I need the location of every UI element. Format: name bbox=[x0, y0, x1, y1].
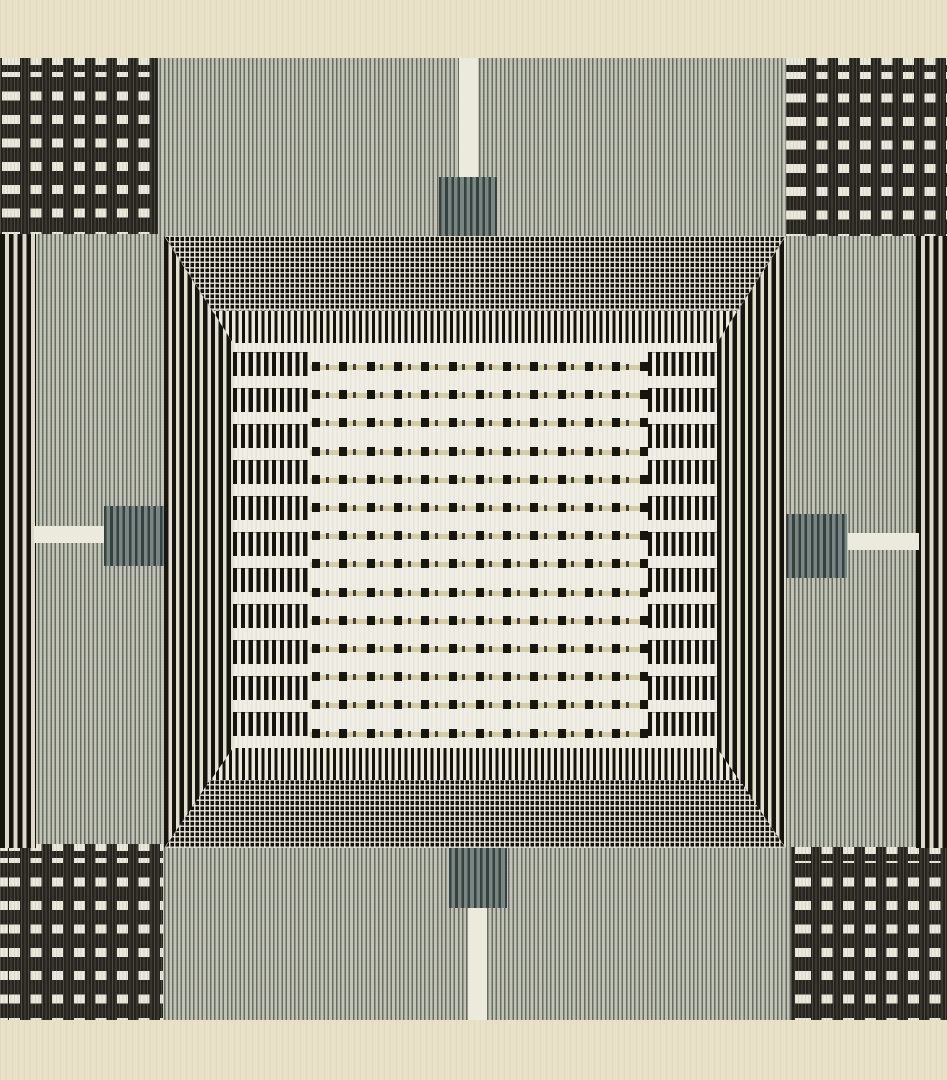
dash-tick bbox=[599, 420, 602, 426]
dash-square bbox=[612, 616, 620, 625]
ladder-bars-left bbox=[233, 343, 308, 748]
dash-square bbox=[612, 362, 620, 371]
dash-square bbox=[530, 447, 538, 456]
dash-square bbox=[312, 700, 320, 709]
dash-square bbox=[449, 531, 457, 540]
dash-square bbox=[558, 559, 566, 568]
dash-tick bbox=[599, 702, 602, 708]
dash-square bbox=[640, 616, 648, 625]
dash-square bbox=[339, 588, 347, 597]
dash-square bbox=[421, 672, 429, 681]
dash-tick bbox=[435, 674, 438, 680]
dash-tick bbox=[544, 505, 547, 511]
dash-square bbox=[476, 700, 484, 709]
dash-square bbox=[612, 559, 620, 568]
dash-tick bbox=[326, 505, 329, 511]
dash-row bbox=[310, 616, 648, 626]
dash-tick bbox=[489, 364, 492, 370]
dash-tick bbox=[626, 420, 629, 426]
dash-square bbox=[394, 616, 402, 625]
dash-tick bbox=[435, 477, 438, 483]
dash-tick bbox=[380, 590, 383, 596]
dash-tick bbox=[517, 533, 520, 539]
white-stripe-bottom bbox=[468, 904, 487, 1020]
dash-tick bbox=[353, 364, 356, 370]
dash-square bbox=[312, 418, 320, 427]
dash-tick bbox=[489, 561, 492, 567]
dash-square bbox=[612, 503, 620, 512]
dash-square bbox=[394, 531, 402, 540]
dash-square bbox=[530, 616, 538, 625]
dash-square bbox=[503, 362, 511, 371]
dash-square bbox=[449, 644, 457, 653]
dash-square bbox=[367, 503, 375, 512]
dash-square bbox=[394, 644, 402, 653]
dash-tick bbox=[435, 420, 438, 426]
frame-comb-band-bottom bbox=[164, 748, 786, 780]
dash-square bbox=[640, 503, 648, 512]
dash-square bbox=[421, 531, 429, 540]
dash-square bbox=[558, 475, 566, 484]
dash-tick bbox=[544, 561, 547, 567]
corner-block-top-right bbox=[786, 58, 947, 236]
dash-square bbox=[558, 390, 566, 399]
dash-tick bbox=[599, 364, 602, 370]
dash-tick bbox=[435, 364, 438, 370]
dash-square bbox=[558, 729, 566, 738]
dash-tick bbox=[353, 702, 356, 708]
dash-square bbox=[421, 418, 429, 427]
dash-square bbox=[585, 447, 593, 456]
dash-square bbox=[394, 447, 402, 456]
dash-square bbox=[612, 390, 620, 399]
corner-block-bottom-right bbox=[791, 847, 947, 1020]
dash-tick bbox=[544, 646, 547, 652]
dash-tick bbox=[435, 533, 438, 539]
dash-square bbox=[503, 475, 511, 484]
dash-square bbox=[585, 588, 593, 597]
dash-square bbox=[421, 475, 429, 484]
dash-tick bbox=[380, 731, 383, 737]
dash-square bbox=[503, 559, 511, 568]
dash-square bbox=[394, 588, 402, 597]
dash-tick bbox=[326, 533, 329, 539]
dash-tick bbox=[626, 505, 629, 511]
dash-tick bbox=[408, 533, 411, 539]
dash-tick bbox=[544, 702, 547, 708]
dash-tick bbox=[489, 533, 492, 539]
ladder-bar bbox=[233, 424, 308, 448]
dash-tick bbox=[462, 392, 465, 398]
dash-square bbox=[640, 588, 648, 597]
dash-tick bbox=[435, 449, 438, 455]
dash-square bbox=[312, 588, 320, 597]
dash-square bbox=[421, 700, 429, 709]
dash-tick bbox=[408, 590, 411, 596]
dash-square bbox=[367, 729, 375, 738]
dash-square bbox=[312, 729, 320, 738]
dash-tick bbox=[517, 364, 520, 370]
dash-square bbox=[476, 390, 484, 399]
dash-tick bbox=[435, 702, 438, 708]
dash-square bbox=[367, 559, 375, 568]
dash-tick bbox=[353, 561, 356, 567]
dash-tick bbox=[517, 477, 520, 483]
dash-square bbox=[503, 447, 511, 456]
dash-square bbox=[503, 588, 511, 597]
dash-square bbox=[503, 390, 511, 399]
dash-square bbox=[503, 672, 511, 681]
dash-tick bbox=[380, 505, 383, 511]
dash-square bbox=[476, 588, 484, 597]
dash-tick bbox=[599, 449, 602, 455]
dash-tick bbox=[353, 618, 356, 624]
corner-block-top-left bbox=[0, 58, 158, 234]
dash-square bbox=[585, 418, 593, 427]
dash-tick bbox=[599, 561, 602, 567]
dash-row bbox=[310, 418, 648, 428]
dash-square bbox=[558, 644, 566, 653]
dash-square bbox=[421, 644, 429, 653]
dash-square bbox=[394, 559, 402, 568]
dash-square bbox=[612, 700, 620, 709]
ladder-bar bbox=[648, 424, 717, 448]
dash-tick bbox=[599, 731, 602, 737]
dash-row bbox=[310, 503, 648, 513]
dash-square bbox=[367, 672, 375, 681]
dash-tick bbox=[571, 561, 574, 567]
dash-tick bbox=[326, 392, 329, 398]
dash-square bbox=[503, 503, 511, 512]
white-bar-right bbox=[848, 533, 919, 550]
dash-tick bbox=[544, 420, 547, 426]
ladder-bar bbox=[648, 604, 717, 628]
dash-tick bbox=[353, 505, 356, 511]
dash-square bbox=[312, 475, 320, 484]
dash-square bbox=[530, 531, 538, 540]
dash-square bbox=[449, 362, 457, 371]
dash-square bbox=[449, 616, 457, 625]
dash-square bbox=[503, 418, 511, 427]
dash-tick bbox=[435, 505, 438, 511]
dash-tick bbox=[353, 590, 356, 596]
dash-square bbox=[312, 672, 320, 681]
dash-tick bbox=[462, 674, 465, 680]
slate-tab-right bbox=[786, 514, 847, 578]
slate-tab-top bbox=[439, 177, 497, 241]
dash-square bbox=[530, 588, 538, 597]
dash-square bbox=[394, 503, 402, 512]
dash-tick bbox=[626, 590, 629, 596]
dash-tick bbox=[435, 392, 438, 398]
dash-square bbox=[449, 700, 457, 709]
dash-tick bbox=[408, 505, 411, 511]
dash-tick bbox=[408, 420, 411, 426]
dash-tick bbox=[380, 702, 383, 708]
ladder-bar bbox=[233, 460, 308, 484]
dash-square bbox=[640, 447, 648, 456]
dash-tick bbox=[326, 449, 329, 455]
dash-tick bbox=[571, 731, 574, 737]
dash-square bbox=[312, 559, 320, 568]
dash-square bbox=[339, 672, 347, 681]
dash-square bbox=[612, 644, 620, 653]
dash-square bbox=[339, 418, 347, 427]
dash-tick bbox=[571, 618, 574, 624]
dash-tick bbox=[326, 420, 329, 426]
dash-tick bbox=[517, 702, 520, 708]
dash-square bbox=[367, 447, 375, 456]
dash-tick bbox=[626, 646, 629, 652]
dash-square bbox=[503, 616, 511, 625]
dash-row bbox=[310, 531, 648, 541]
dash-tick bbox=[326, 674, 329, 680]
dash-square bbox=[339, 475, 347, 484]
dash-square bbox=[640, 672, 648, 681]
dash-tick bbox=[462, 505, 465, 511]
dash-tick bbox=[408, 364, 411, 370]
dash-tick bbox=[626, 392, 629, 398]
dash-square bbox=[612, 475, 620, 484]
dash-row bbox=[310, 559, 648, 569]
white-bar-left bbox=[34, 526, 111, 543]
dash-square bbox=[640, 700, 648, 709]
dash-square bbox=[312, 644, 320, 653]
dash-tick bbox=[326, 618, 329, 624]
dash-square bbox=[558, 700, 566, 709]
dash-tick bbox=[353, 646, 356, 652]
dash-square bbox=[640, 644, 648, 653]
dash-tick bbox=[435, 646, 438, 652]
dash-tick bbox=[544, 618, 547, 624]
dash-tick bbox=[544, 590, 547, 596]
dash-square bbox=[585, 616, 593, 625]
dash-square bbox=[367, 700, 375, 709]
dash-tick bbox=[571, 533, 574, 539]
ladder-bar bbox=[648, 496, 717, 520]
dash-square bbox=[530, 503, 538, 512]
dash-square bbox=[558, 447, 566, 456]
dash-tick bbox=[489, 618, 492, 624]
dash-square bbox=[476, 503, 484, 512]
dash-square bbox=[585, 559, 593, 568]
dash-tick bbox=[571, 646, 574, 652]
frame-mesh-band-top bbox=[164, 236, 786, 310]
dash-square bbox=[585, 475, 593, 484]
dash-tick bbox=[380, 449, 383, 455]
ladder-bar bbox=[233, 568, 308, 592]
dash-square bbox=[394, 700, 402, 709]
ladder-bar bbox=[233, 676, 308, 700]
dash-tick bbox=[517, 561, 520, 567]
dash-square bbox=[640, 559, 648, 568]
dash-tick bbox=[489, 646, 492, 652]
dash-square bbox=[503, 729, 511, 738]
dash-square bbox=[558, 531, 566, 540]
dash-row bbox=[310, 644, 648, 654]
dash-square bbox=[449, 390, 457, 399]
dash-square bbox=[558, 418, 566, 427]
dash-tick bbox=[380, 561, 383, 567]
dash-square bbox=[585, 531, 593, 540]
dash-square bbox=[640, 729, 648, 738]
dash-tick bbox=[517, 449, 520, 455]
dash-tick bbox=[626, 702, 629, 708]
dash-square bbox=[449, 503, 457, 512]
dash-square bbox=[530, 390, 538, 399]
dash-square bbox=[394, 418, 402, 427]
ladder-bar bbox=[648, 388, 717, 412]
dash-tick bbox=[380, 420, 383, 426]
dash-tick bbox=[326, 590, 329, 596]
dash-square bbox=[558, 503, 566, 512]
dash-tick bbox=[326, 561, 329, 567]
dash-square bbox=[476, 616, 484, 625]
dash-tick bbox=[353, 674, 356, 680]
dash-square bbox=[530, 418, 538, 427]
dash-square bbox=[421, 729, 429, 738]
dash-square bbox=[585, 362, 593, 371]
dash-square bbox=[558, 672, 566, 681]
dash-tick bbox=[517, 646, 520, 652]
dash-tick bbox=[489, 477, 492, 483]
frame-comb-band-top bbox=[164, 311, 786, 343]
dash-tick bbox=[435, 561, 438, 567]
dash-tick bbox=[517, 731, 520, 737]
dash-tick bbox=[489, 674, 492, 680]
dash-tick bbox=[517, 590, 520, 596]
dash-square bbox=[476, 362, 484, 371]
dash-tick bbox=[380, 392, 383, 398]
dash-tick bbox=[571, 364, 574, 370]
frame-stripe-band-left bbox=[164, 236, 233, 848]
dash-square bbox=[449, 559, 457, 568]
dash-tick bbox=[517, 505, 520, 511]
dash-square bbox=[339, 390, 347, 399]
dash-square bbox=[585, 700, 593, 709]
dash-tick bbox=[599, 392, 602, 398]
dash-tick bbox=[326, 702, 329, 708]
dash-tick bbox=[626, 364, 629, 370]
dash-tick bbox=[462, 420, 465, 426]
dash-square bbox=[640, 531, 648, 540]
selvage-stripe-band-left bbox=[0, 234, 36, 848]
dash-tick bbox=[408, 702, 411, 708]
dash-square bbox=[585, 729, 593, 738]
dash-tick bbox=[408, 731, 411, 737]
dash-tick bbox=[599, 590, 602, 596]
dash-tick bbox=[489, 731, 492, 737]
dash-tick bbox=[626, 618, 629, 624]
dash-square bbox=[421, 588, 429, 597]
dash-tick bbox=[626, 561, 629, 567]
dash-tick bbox=[517, 674, 520, 680]
dash-square bbox=[612, 418, 620, 427]
dash-tick bbox=[544, 392, 547, 398]
dash-square bbox=[339, 362, 347, 371]
dash-square bbox=[530, 362, 538, 371]
dash-square bbox=[612, 447, 620, 456]
dash-square bbox=[312, 503, 320, 512]
dash-square bbox=[476, 475, 484, 484]
dash-tick bbox=[626, 533, 629, 539]
dash-square bbox=[585, 672, 593, 681]
dash-tick bbox=[326, 646, 329, 652]
dash-tick bbox=[380, 364, 383, 370]
dash-tick bbox=[571, 420, 574, 426]
dash-square bbox=[367, 588, 375, 597]
dash-tick bbox=[408, 674, 411, 680]
dash-tick bbox=[326, 477, 329, 483]
dash-tick bbox=[489, 449, 492, 455]
dash-square bbox=[367, 475, 375, 484]
dash-tick bbox=[435, 731, 438, 737]
dash-square bbox=[476, 729, 484, 738]
dash-row bbox=[310, 362, 648, 372]
dash-row bbox=[310, 672, 648, 682]
dash-tick bbox=[544, 477, 547, 483]
dash-square bbox=[640, 418, 648, 427]
dash-square bbox=[476, 559, 484, 568]
dash-square bbox=[312, 447, 320, 456]
dash-square bbox=[339, 644, 347, 653]
dash-square bbox=[339, 700, 347, 709]
dash-tick bbox=[544, 533, 547, 539]
dash-square bbox=[339, 616, 347, 625]
dash-square bbox=[449, 418, 457, 427]
center-field bbox=[233, 343, 717, 748]
dash-tick bbox=[408, 561, 411, 567]
dash-tick bbox=[517, 420, 520, 426]
dash-square bbox=[476, 447, 484, 456]
dash-square bbox=[339, 729, 347, 738]
dash-square bbox=[612, 588, 620, 597]
ladder-bar bbox=[233, 712, 308, 736]
frame-mesh-band-bottom bbox=[164, 780, 786, 848]
dash-tick bbox=[626, 477, 629, 483]
dash-square bbox=[612, 672, 620, 681]
dash-tick bbox=[408, 618, 411, 624]
dash-square bbox=[503, 644, 511, 653]
dash-tick bbox=[408, 477, 411, 483]
dash-square bbox=[421, 390, 429, 399]
dash-tick bbox=[544, 364, 547, 370]
dash-tick bbox=[408, 392, 411, 398]
dash-tick bbox=[435, 618, 438, 624]
dash-tick bbox=[462, 364, 465, 370]
dash-tick bbox=[380, 618, 383, 624]
dash-tick bbox=[408, 449, 411, 455]
dash-tick bbox=[353, 392, 356, 398]
dash-square bbox=[421, 559, 429, 568]
dash-tick bbox=[544, 731, 547, 737]
dash-tick bbox=[544, 674, 547, 680]
dash-square bbox=[367, 390, 375, 399]
dash-tick bbox=[408, 646, 411, 652]
dash-square bbox=[530, 559, 538, 568]
dash-tick bbox=[571, 674, 574, 680]
ladder-bar bbox=[233, 496, 308, 520]
dash-tick bbox=[489, 420, 492, 426]
dash-tick bbox=[489, 505, 492, 511]
dash-tick bbox=[462, 449, 465, 455]
dash-tick bbox=[571, 702, 574, 708]
dash-square bbox=[503, 700, 511, 709]
dash-square bbox=[449, 729, 457, 738]
dash-tick bbox=[599, 477, 602, 483]
dash-square bbox=[530, 672, 538, 681]
dash-square bbox=[339, 531, 347, 540]
